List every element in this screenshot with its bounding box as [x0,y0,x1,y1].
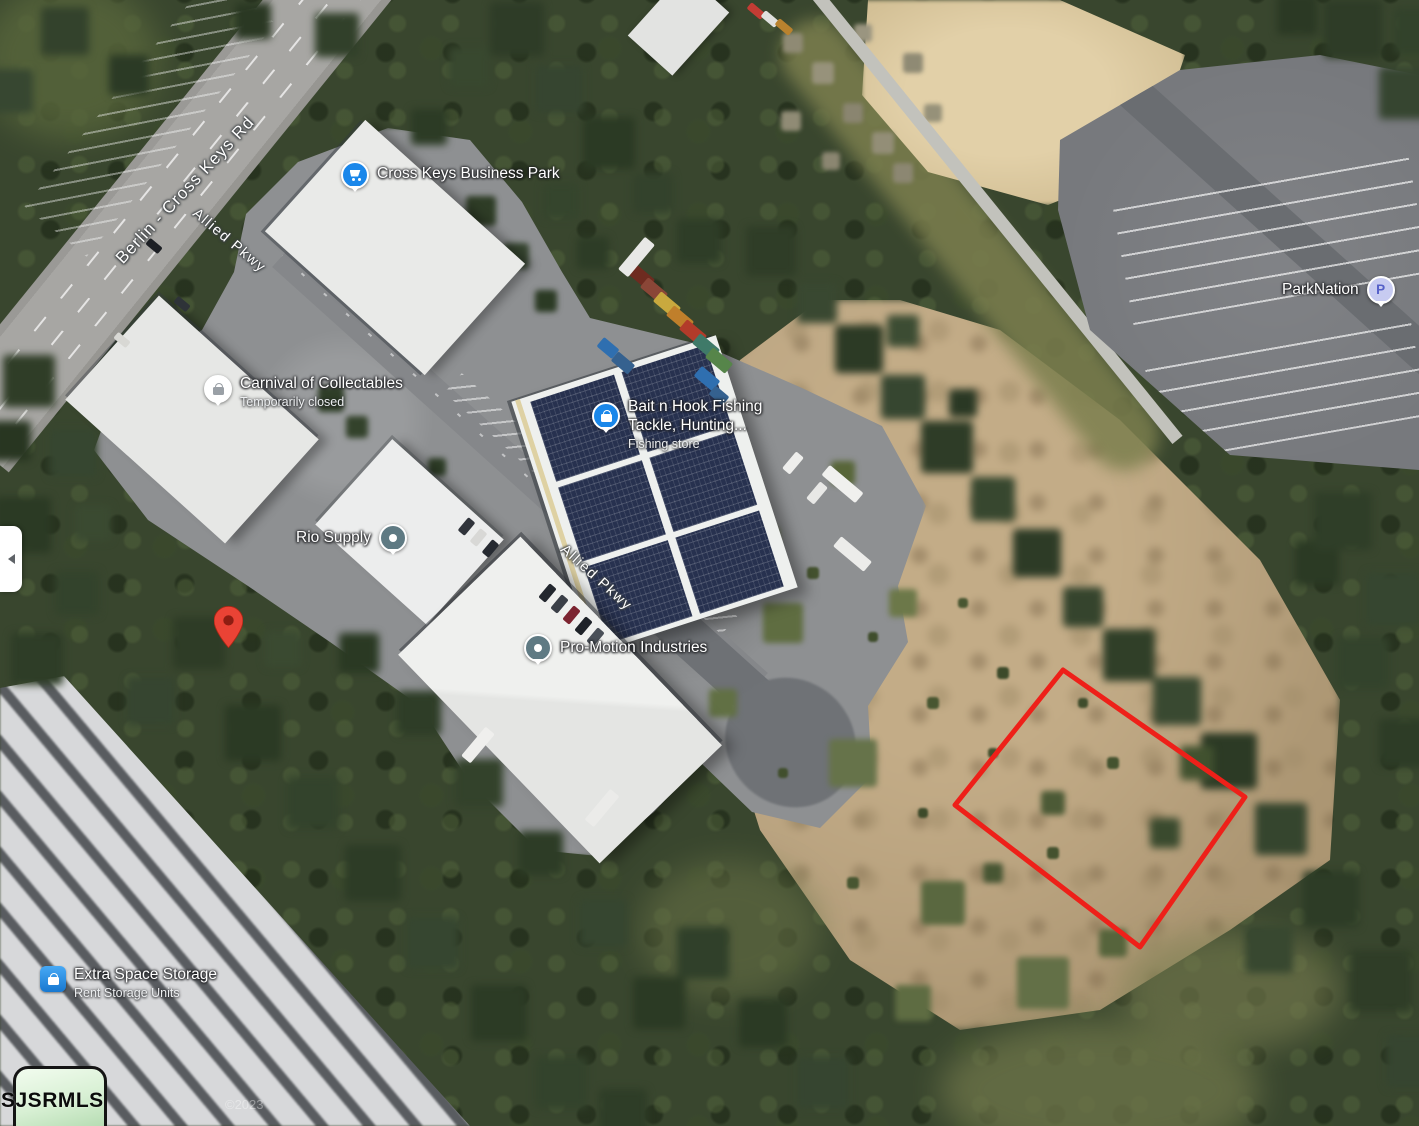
scrub-patch [1120,930,1340,1050]
poi-label[interactable]: Rio Supply [296,529,371,548]
poi-category: Fishing store [628,436,770,452]
poi-pro-motion-industries[interactable]: Pro-Motion Industries [524,634,707,662]
mls-watermark: SJSRMLS [1,1090,104,1111]
poi-extra-space-storage[interactable]: Extra Space Storage Rent Storage Units [40,966,217,1001]
lock-glyph [48,973,59,985]
closed-place-icon[interactable] [204,375,232,403]
collapse-panel-arrow-icon [3,554,15,564]
parking-icon[interactable]: P [1367,276,1395,304]
bag-glyph [213,383,224,395]
poi-cross-keys-business-park[interactable]: Cross Keys Business Park [341,161,560,189]
poi-rio-supply[interactable]: Rio Supply [296,524,407,552]
poi-label[interactable]: ParkNation [1282,281,1359,300]
poi-carnival-of-collectables[interactable]: Carnival of Collectables Temporarily clo… [204,375,403,410]
poi-label[interactable]: Pro-Motion Industries [560,639,707,658]
scrub-patch [640,860,820,1000]
cart-glyph [349,170,362,181]
lock-icon[interactable] [40,966,66,992]
poi-label[interactable]: Cross Keys Business Park [377,165,560,184]
map-canvas[interactable]: Berlin - Cross Keys Rd Allied Pkwy Allie… [0,0,1419,1126]
poi-label[interactable]: Bait n Hook Fishing Tackle, Hunting... [628,398,770,436]
copyright-watermark: ©2023 [225,1098,264,1111]
parking-letter: P [1376,283,1385,297]
poi-status: Temporarily closed [240,394,403,410]
generic-place-icon[interactable] [524,634,552,662]
shopping-cart-icon[interactable] [341,161,369,189]
poi-label[interactable]: Extra Space Storage [74,966,217,985]
bag-glyph [601,410,612,422]
poi-label[interactable]: Carnival of Collectables [240,375,403,394]
generic-place-icon[interactable] [379,524,407,552]
side-panel-collapse-tab[interactable] [0,526,22,592]
poi-bait-n-hook[interactable]: Bait n Hook Fishing Tackle, Hunting... F… [592,398,770,452]
shopping-bag-icon[interactable] [592,402,620,430]
median-trees [0,0,2,2]
red-pin-icon[interactable] [214,606,243,648]
poi-parknation[interactable]: ParkNation P [1282,276,1395,304]
poi-subtitle: Rent Storage Units [74,985,217,1001]
